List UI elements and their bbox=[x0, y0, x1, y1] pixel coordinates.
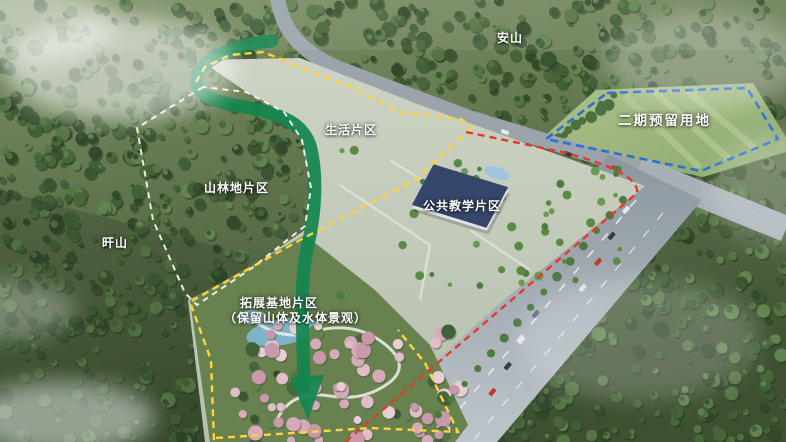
garden-pond-2 bbox=[238, 310, 266, 324]
siteplan-rendering bbox=[0, 0, 786, 442]
campus-masterplan-aerial-view: 安山 二期预留用地 生活片区 山林地片区 旰山 公共教学片区 拓展基地片区 （保… bbox=[0, 0, 786, 442]
